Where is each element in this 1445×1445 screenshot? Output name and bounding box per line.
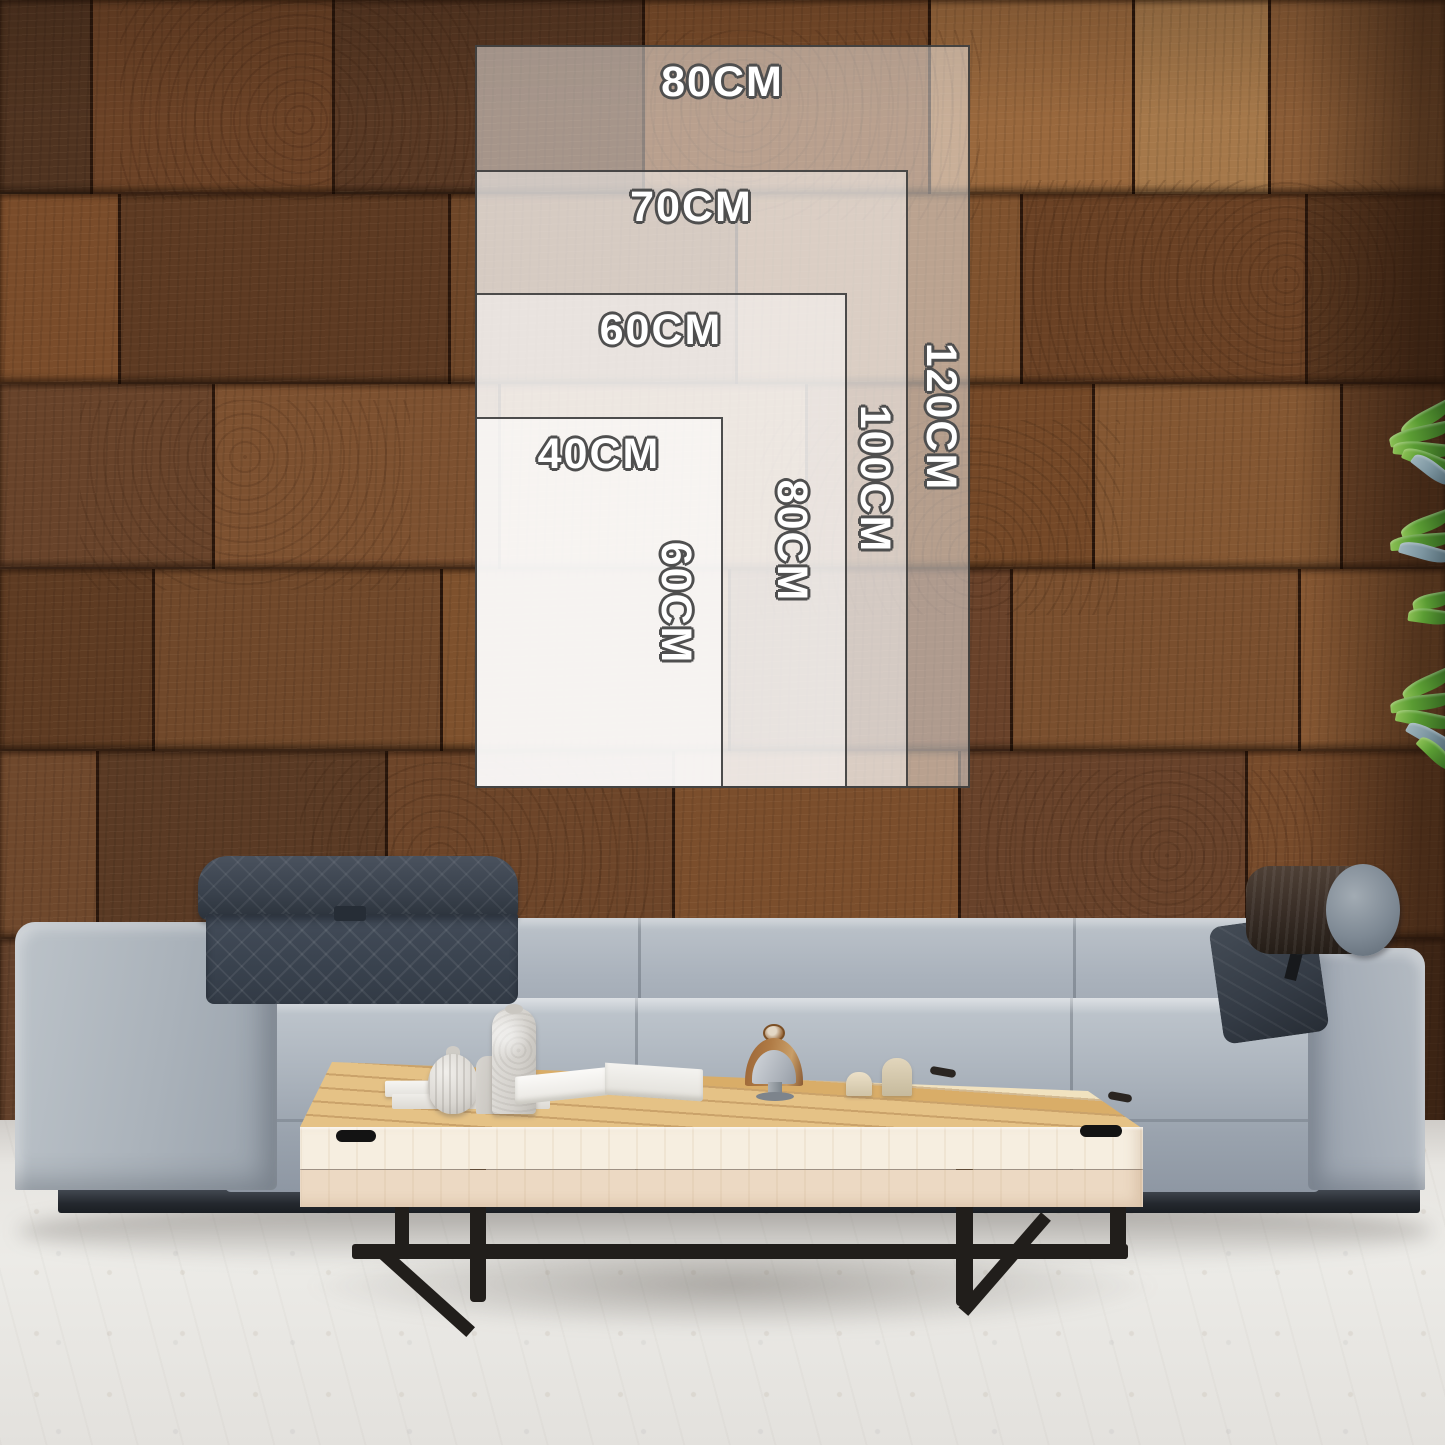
- height-dimension-label: 60CM: [654, 541, 697, 664]
- candle: [882, 1058, 912, 1096]
- headrest-hinge: [334, 906, 366, 921]
- bell-cloche-foot: [756, 1092, 794, 1101]
- gourd-vase: [428, 1054, 478, 1114]
- open-book-page: [605, 1063, 703, 1102]
- width-dimension-label: 70CM: [477, 186, 906, 229]
- height-dimension-label: 120CM: [919, 342, 962, 491]
- candle: [846, 1072, 872, 1096]
- size-guide-overlay: 80CM 120CM 70CM 100CM 60CM 80CM 40CM 60C…: [0, 0, 1445, 1445]
- table-drawer-handle: [1080, 1125, 1122, 1137]
- tall-vase-lip: [505, 1004, 523, 1014]
- sofa-armrest-right: [1308, 948, 1425, 1190]
- quilted-headrest-panel: [206, 914, 518, 1004]
- width-dimension-label: 80CM: [477, 61, 968, 104]
- table-leg-runner: [352, 1244, 1128, 1259]
- bolster-pillow-cap: [1326, 864, 1400, 956]
- height-dimension-label: 80CM: [770, 479, 813, 602]
- table-drawer-handle: [336, 1130, 376, 1142]
- product-size-guide-scene: 80CM 120CM 70CM 100CM 60CM 80CM 40CM 60C…: [0, 0, 1445, 1445]
- width-dimension-label: 60CM: [477, 309, 845, 352]
- table-front-panel: [300, 1127, 1143, 1207]
- height-dimension-label: 100CM: [853, 405, 896, 554]
- width-dimension-label: 40CM: [477, 433, 721, 476]
- size-rect-40x60: 40CM 60CM: [475, 417, 723, 788]
